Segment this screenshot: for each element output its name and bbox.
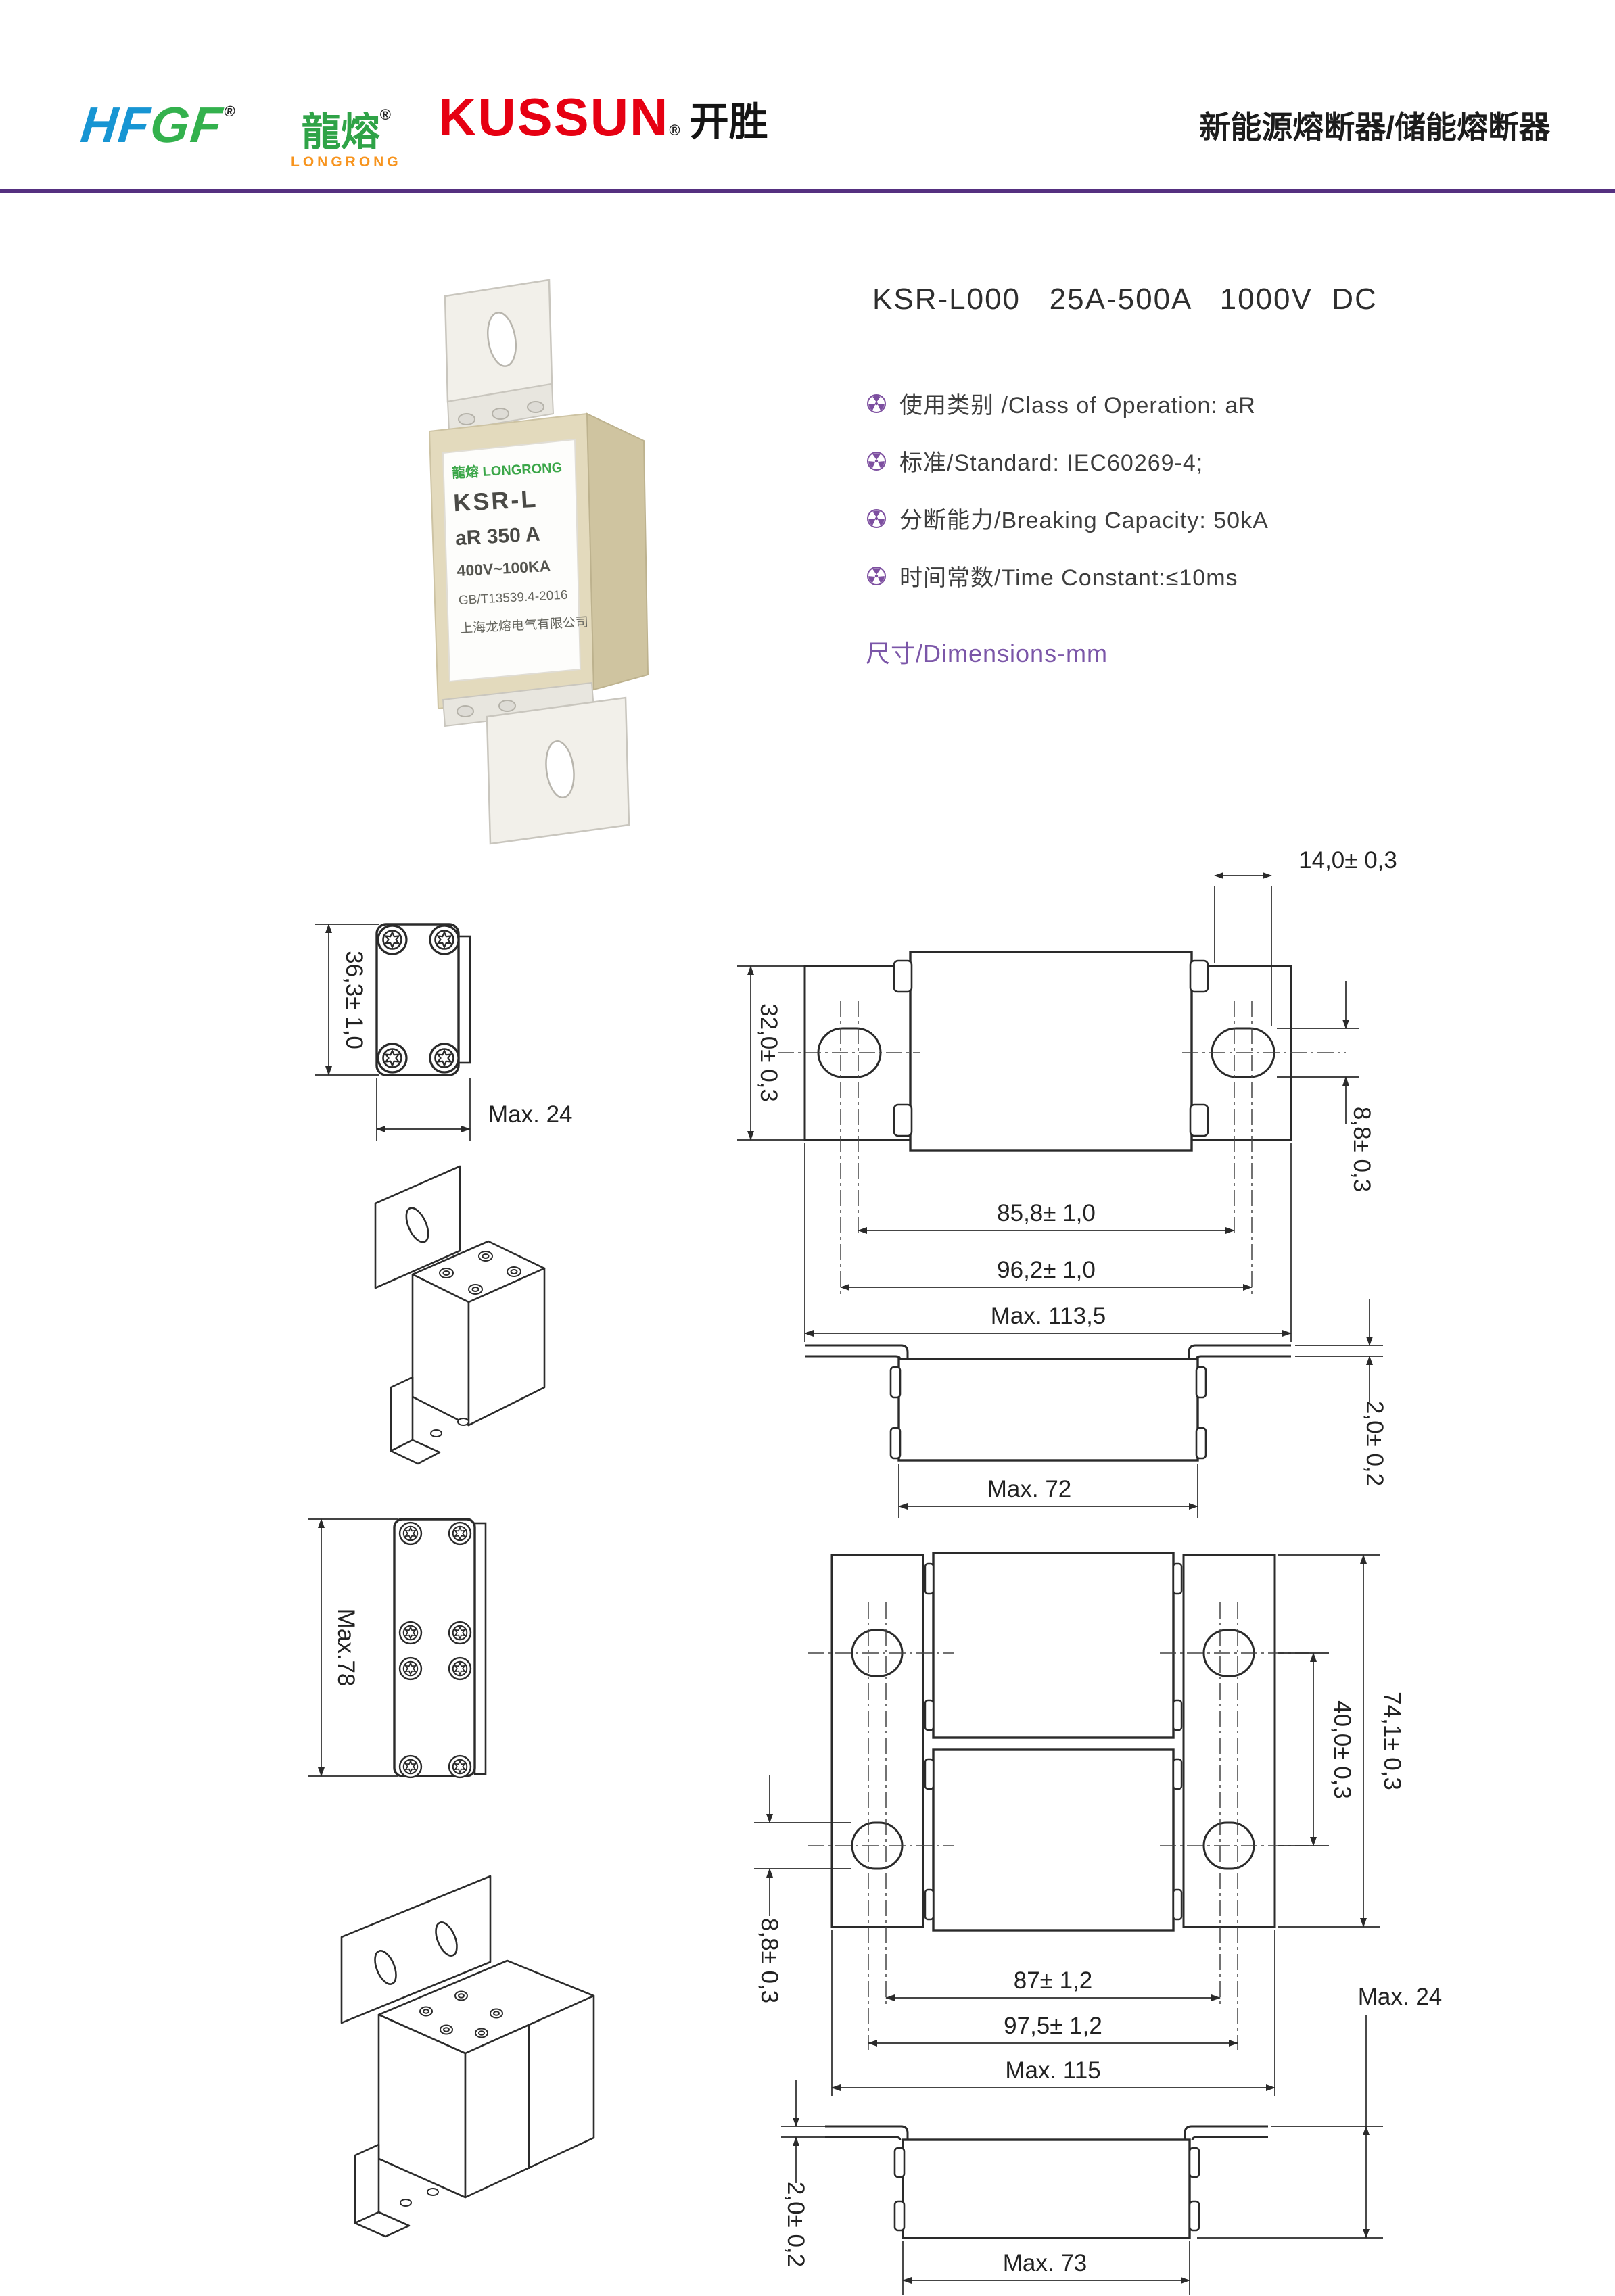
page-title: 新能源熔断器/储能熔断器: [1199, 103, 1550, 147]
dim-label-tab-width: 14,0± 0,3: [1298, 847, 1397, 874]
longrong-logo-text: 龍熔: [302, 110, 380, 154]
dim-label-total-width: Max. 113,5: [991, 1303, 1106, 1329]
spec-text: 时间常数/Time Constant:≤10ms: [899, 559, 1238, 592]
dim-label-span2: 97,5± 1,2: [1004, 2013, 1102, 2039]
spec-bullet-icon: [866, 450, 887, 472]
dim-label-thickness: 2,0± 0,2: [782, 2182, 809, 2267]
photo-label-model: KSR-L: [452, 485, 538, 517]
photo-bottom-bracket: [443, 683, 629, 844]
dim-label-span1: 87± 1,2: [1014, 1967, 1093, 1994]
drawing-large-isometric-view: [284, 1859, 690, 2238]
drawing-small-front-and-side-view: 32,0± 0,3 14,0± 0,3 8,8± 0,3 85,8± 1,0 9…: [730, 811, 1461, 1528]
dim-label-width: Max. 24: [488, 1101, 573, 1128]
spec-item-class: 使用类别 /Class of Operation: aR: [866, 387, 1269, 420]
dim-label-hole-span: 85,8± 1,0: [997, 1200, 1096, 1226]
dim-label-height: 36,3± 1,0: [341, 951, 367, 1049]
spec-item-standard: 标准/Standard: IEC60269-4;: [866, 444, 1269, 477]
drawing-large-top-view: Max.78: [257, 1487, 622, 1893]
dim-label-hole-height: 8,8± 0,3: [756, 1918, 782, 2003]
dim-label-height: Max. 24: [1358, 1984, 1443, 2010]
spec-text: 标准/Standard: IEC60269-4;: [899, 444, 1203, 477]
kaisheng-logo-text: 开胜: [690, 90, 768, 147]
dim-label-total-width: Max. 115: [1005, 2057, 1100, 2084]
photo-fuse-body: 龍熔 LONGRONG KSR-L aR 350 A 400V~100KA GB…: [429, 414, 648, 709]
dim-label-tab-height: 32,0± 0,3: [755, 1003, 782, 1102]
kussun-logo: KUSSUN ® 开胜: [438, 87, 768, 148]
product-photo: 龍熔 LONGRONG KSR-L aR 350 A 400V~100KA GB…: [284, 257, 690, 771]
photo-top-bracket: [445, 280, 553, 431]
dim-label-outer-span: 96,2± 1,0: [997, 1257, 1096, 1283]
dim-label-hole-height: 8,8± 0,3: [1349, 1107, 1375, 1192]
product-title: KSR-L000 25A-500A 1000V DC: [872, 283, 1378, 316]
photo-label-rating: aR 350 A: [454, 523, 540, 550]
dimensions-heading: 尺寸/Dimensions-mm: [866, 634, 1108, 669]
spec-bullet-icon: [866, 393, 887, 414]
drawing-small-isometric-view: [311, 1149, 649, 1440]
spec-bullet-icon: [866, 565, 887, 587]
drawing-small-top-view: 36,3± 1,0 Max. 24: [271, 852, 744, 1170]
dim-label-body-width: Max. 73: [1003, 2250, 1087, 2276]
longrong-registered-mark: ®: [380, 106, 391, 123]
kussun-logo-text: KUSSUN: [438, 87, 669, 148]
dim-label-tab-height: 74,1± 0,3: [1379, 1692, 1405, 1790]
drawing-large-front-and-side-view: 40,0± 0,3 74,1± 0,3 8,8± 0,3 87± 1,2 97,…: [730, 1494, 1501, 2296]
spec-item-time-constant: 时间常数/Time Constant:≤10ms: [866, 559, 1269, 592]
longrong-logo-subtext: LONGRONG: [291, 154, 402, 170]
dim-label-thickness: 2,0± 0,2: [1361, 1401, 1388, 1486]
header-divider: [0, 189, 1615, 193]
spec-text: 分断能力/Breaking Capacity: 50kA: [899, 502, 1269, 535]
datasheet-page: HFGF® 龍熔® LONGRONG KUSSUN ® 开胜 新能源熔断器/储能…: [0, 0, 1615, 2296]
hfgf-logo: HFGF®: [78, 96, 239, 153]
dim-label-hole-span: 40,0± 0,3: [1329, 1700, 1355, 1799]
spec-bullet-icon: [866, 508, 887, 529]
kussun-registered-mark: ®: [669, 122, 680, 139]
spec-text: 使用类别 /Class of Operation: aR: [899, 387, 1256, 420]
hfgf-registered-mark: ®: [223, 103, 237, 120]
dim-label-height: Max.78: [333, 1609, 359, 1687]
longrong-logo: 龍熔® LONGRONG: [291, 95, 402, 170]
spec-item-breaking-capacity: 分断能力/Breaking Capacity: 50kA: [866, 502, 1269, 535]
spec-list: 使用类别 /Class of Operation: aR 标准/Standard…: [866, 387, 1269, 617]
